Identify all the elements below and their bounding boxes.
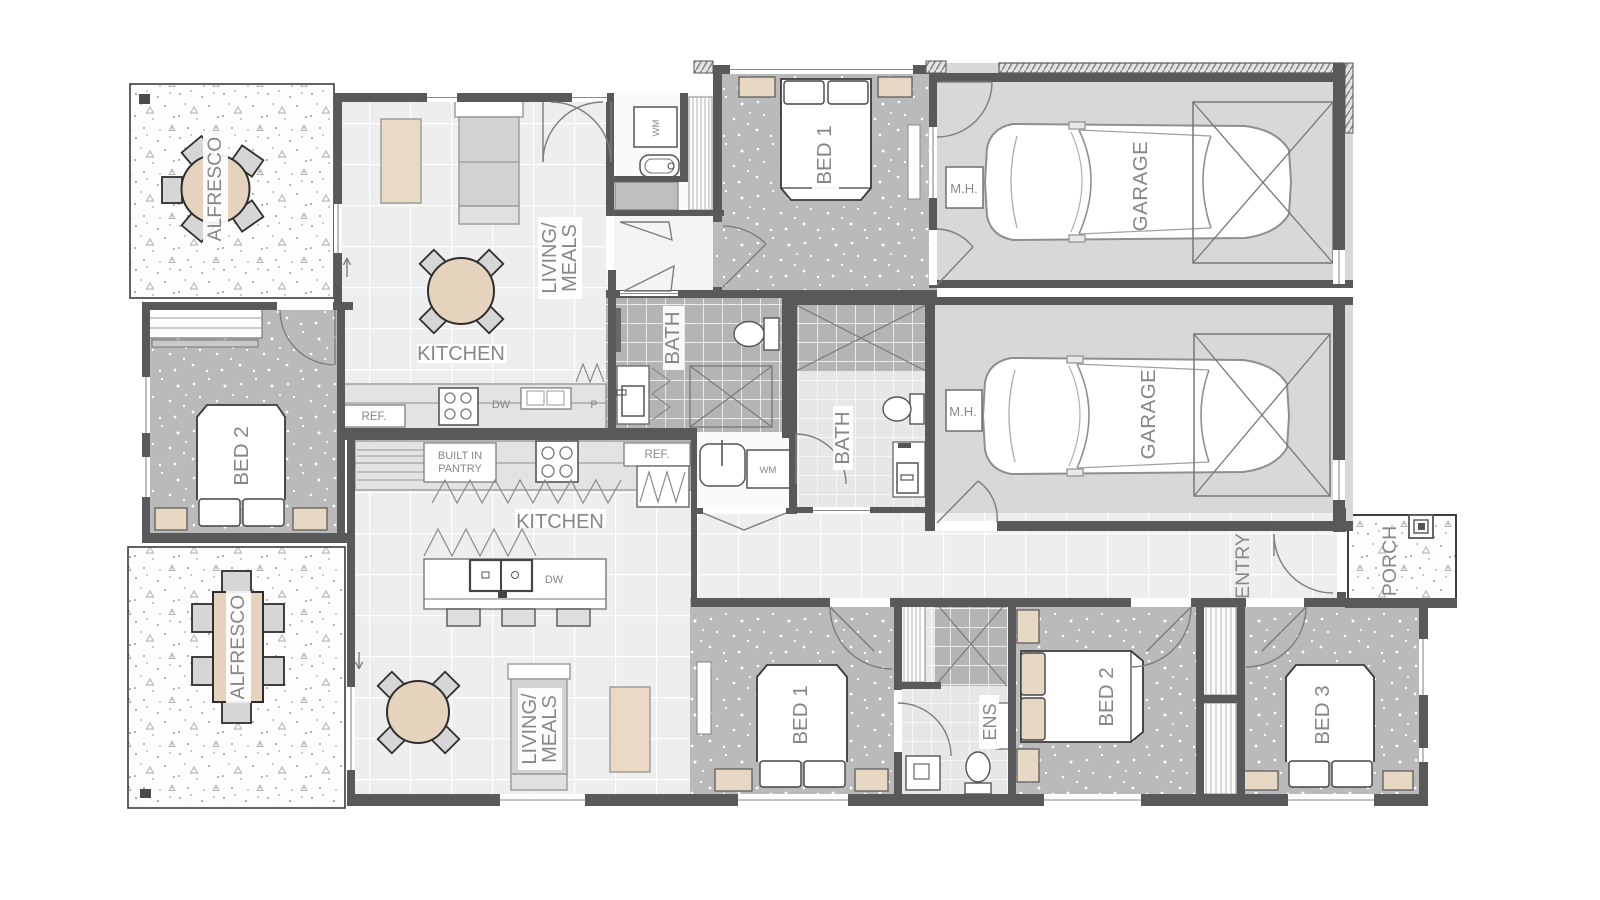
svg-text:GARAGE: GARAGE (1129, 141, 1152, 232)
svg-text:BED 2: BED 2 (1095, 667, 1118, 726)
svg-text:BED 1: BED 1 (789, 685, 812, 744)
svg-text:P: P (590, 399, 597, 411)
svg-text:ALFRESCO: ALFRESCO (205, 137, 226, 242)
svg-text:BATH: BATH (831, 411, 854, 464)
svg-text:KITCHEN: KITCHEN (417, 343, 505, 365)
svg-text:ENTRY: ENTRY (1232, 533, 1254, 599)
svg-text:DW: DW (492, 399, 511, 411)
svg-text:MEALS: MEALS (559, 224, 581, 292)
svg-text:PANTRY: PANTRY (438, 463, 482, 475)
svg-text:BED 3: BED 3 (1311, 685, 1334, 744)
svg-text:LIVING/: LIVING/ (519, 693, 541, 765)
svg-text:BED 1: BED 1 (813, 125, 836, 184)
svg-text:ENS: ENS (980, 703, 1000, 740)
svg-text:REF.: REF. (362, 411, 387, 423)
svg-text:M.H.: M.H. (950, 181, 977, 196)
svg-text:REF.: REF. (645, 449, 670, 461)
svg-text:PORCH: PORCH (1379, 526, 1401, 596)
svg-text:BATH: BATH (661, 311, 684, 364)
svg-text:WM: WM (760, 465, 777, 476)
svg-text:LIVING/: LIVING/ (539, 222, 561, 294)
svg-text:WM: WM (651, 119, 662, 136)
svg-text:ALFRESCO: ALFRESCO (228, 595, 249, 700)
svg-text:GARAGE: GARAGE (1137, 369, 1160, 460)
svg-text:DW: DW (545, 574, 564, 586)
svg-text:MEALS: MEALS (539, 695, 561, 763)
svg-text:BED 2: BED 2 (230, 426, 253, 485)
svg-text:BUILT IN: BUILT IN (438, 450, 482, 462)
svg-text:M.H.: M.H. (949, 404, 976, 419)
svg-text:KITCHEN: KITCHEN (516, 511, 604, 533)
